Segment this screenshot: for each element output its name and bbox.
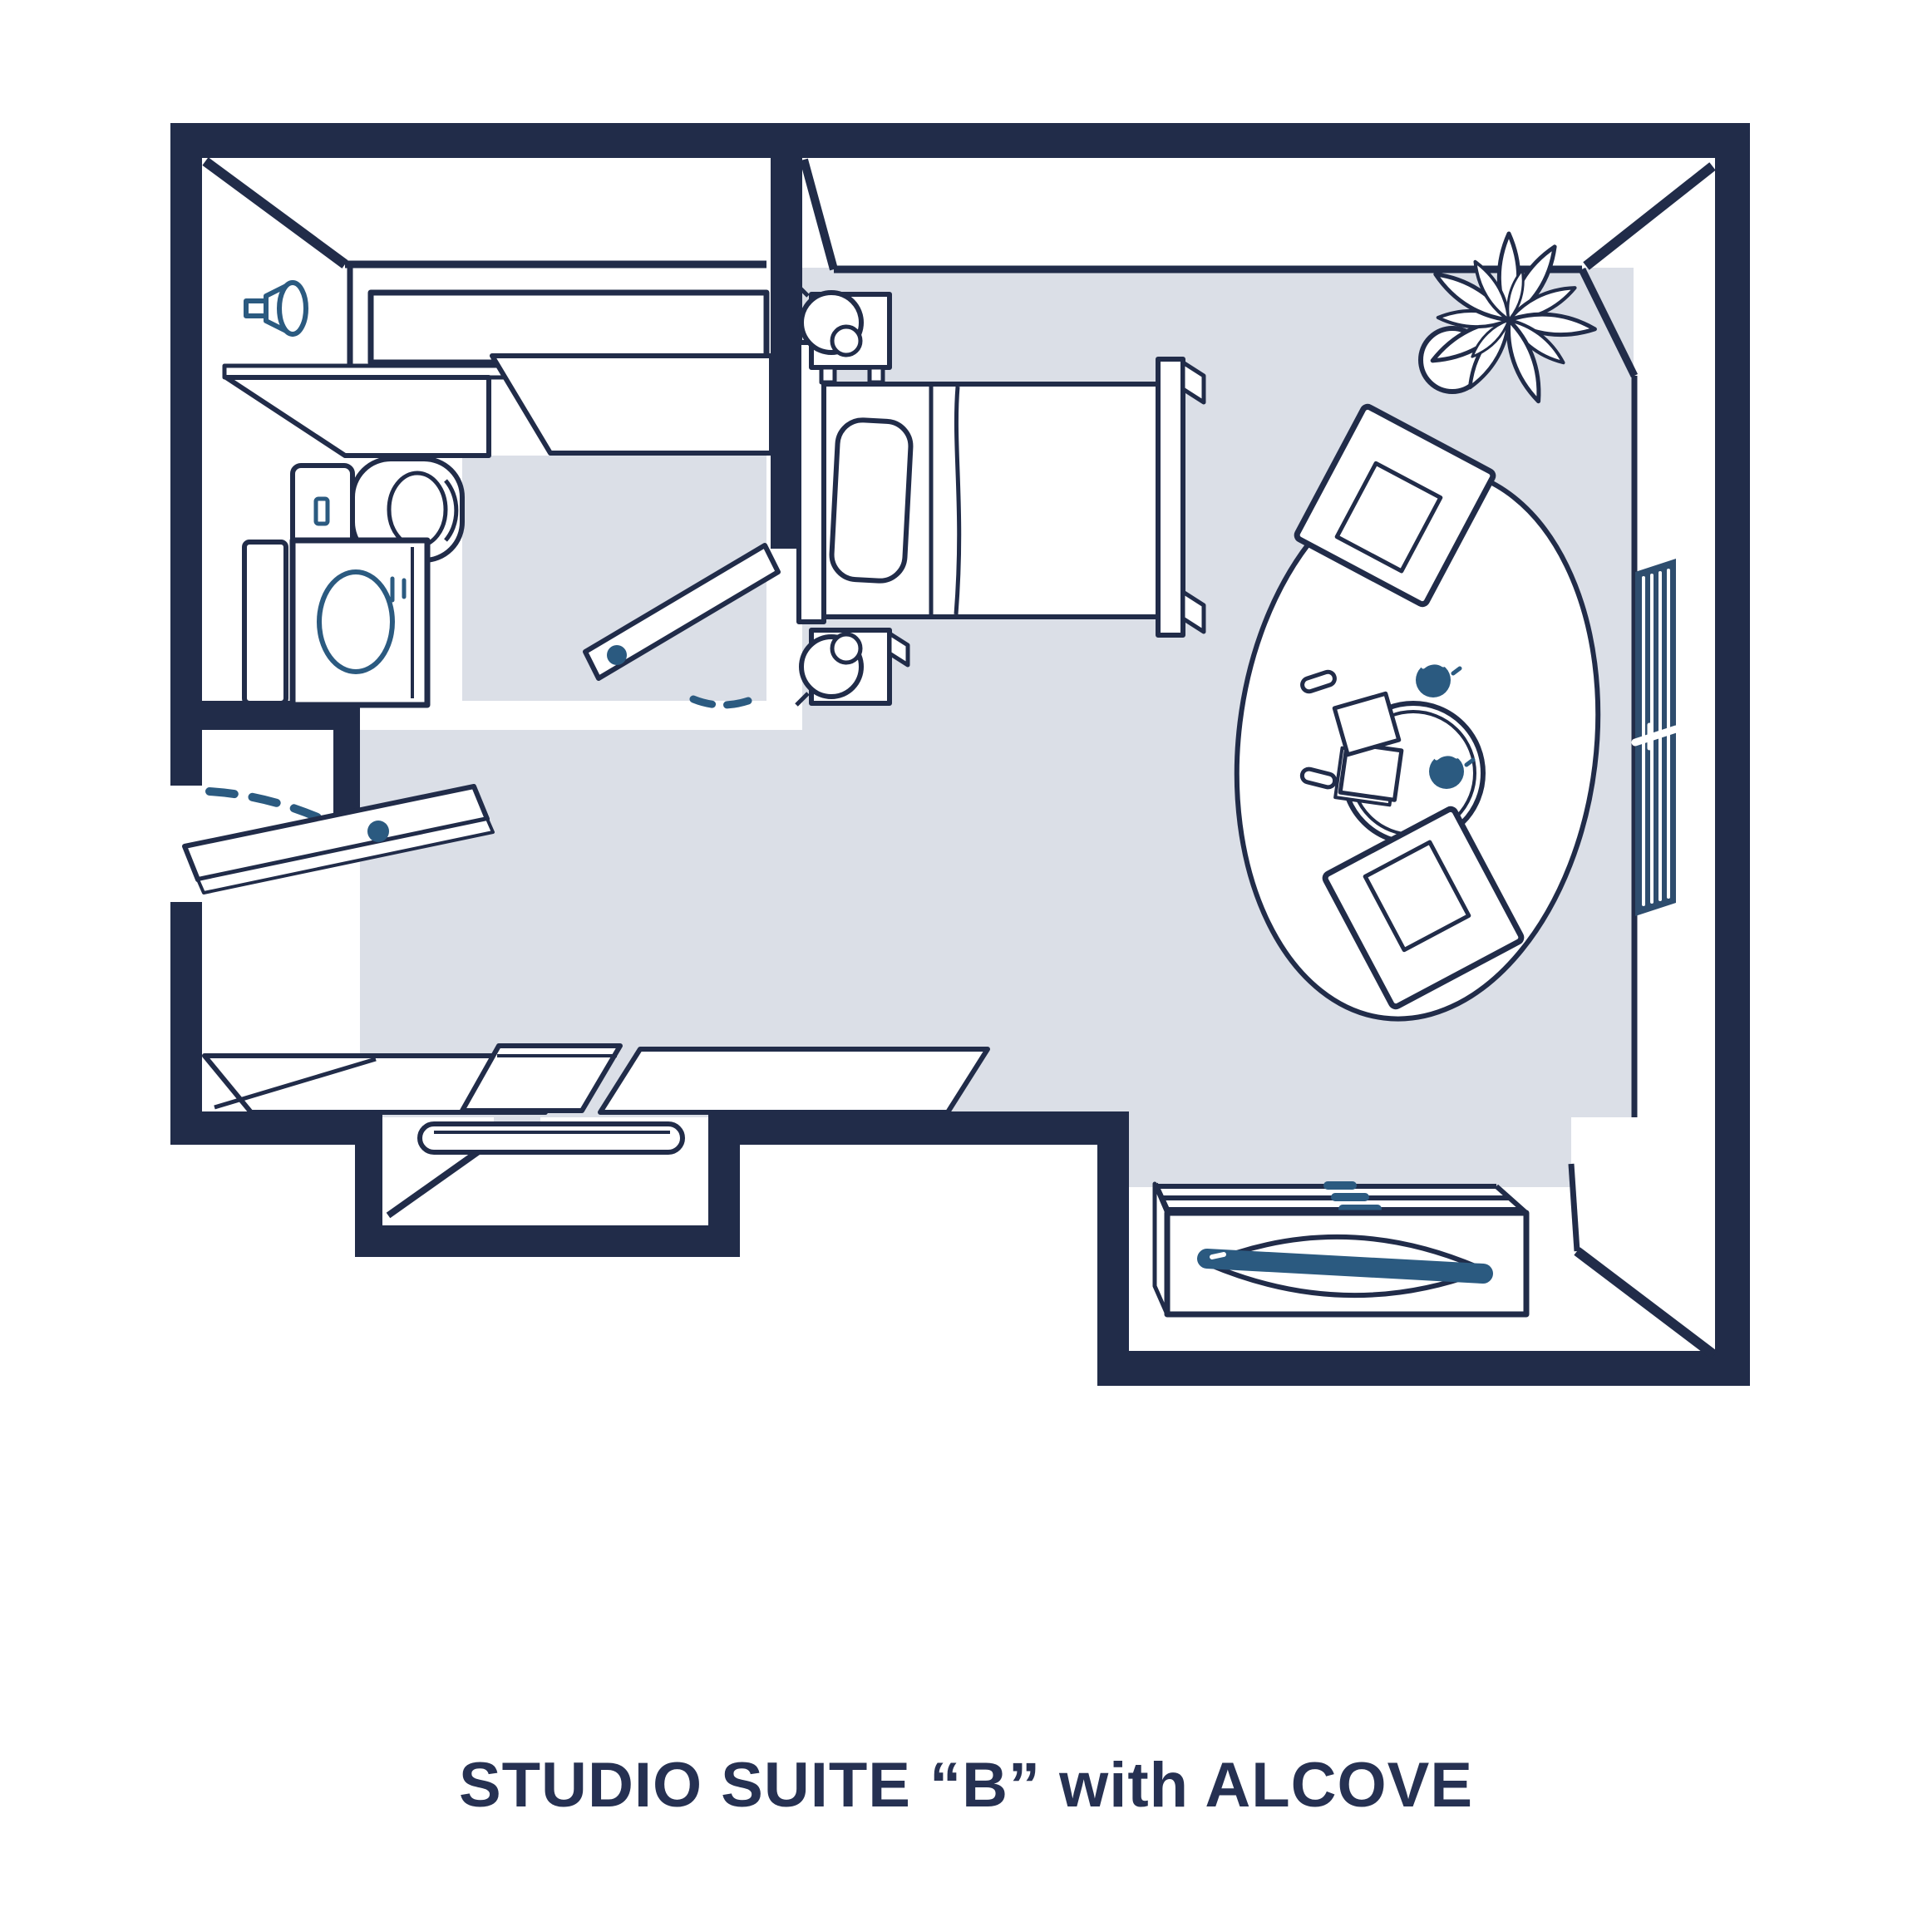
plan-title: STUDIO SUITE “B” with ALCOVE bbox=[0, 1751, 1932, 1821]
wall-sconce-icon bbox=[246, 283, 306, 334]
floor-plan-page: STUDIO SUITE “B” with ALCOVE bbox=[0, 0, 1932, 1932]
nightstand-lower bbox=[796, 630, 908, 705]
pillow bbox=[830, 419, 912, 582]
closet-rod bbox=[420, 1124, 683, 1152]
vanity-mirror bbox=[371, 293, 766, 362]
washer-icon bbox=[244, 540, 427, 705]
bed bbox=[799, 343, 1204, 635]
headboard bbox=[799, 343, 824, 622]
dresser bbox=[1155, 1181, 1526, 1314]
footboard bbox=[1158, 359, 1183, 635]
door-handle-icon bbox=[607, 645, 627, 665]
nightstand-upper bbox=[796, 284, 890, 382]
floor-plan-illustration bbox=[0, 0, 1932, 1932]
door-handle-icon bbox=[367, 821, 389, 842]
vanity-counter bbox=[224, 356, 771, 456]
window-blinds-icon bbox=[1635, 559, 1676, 916]
